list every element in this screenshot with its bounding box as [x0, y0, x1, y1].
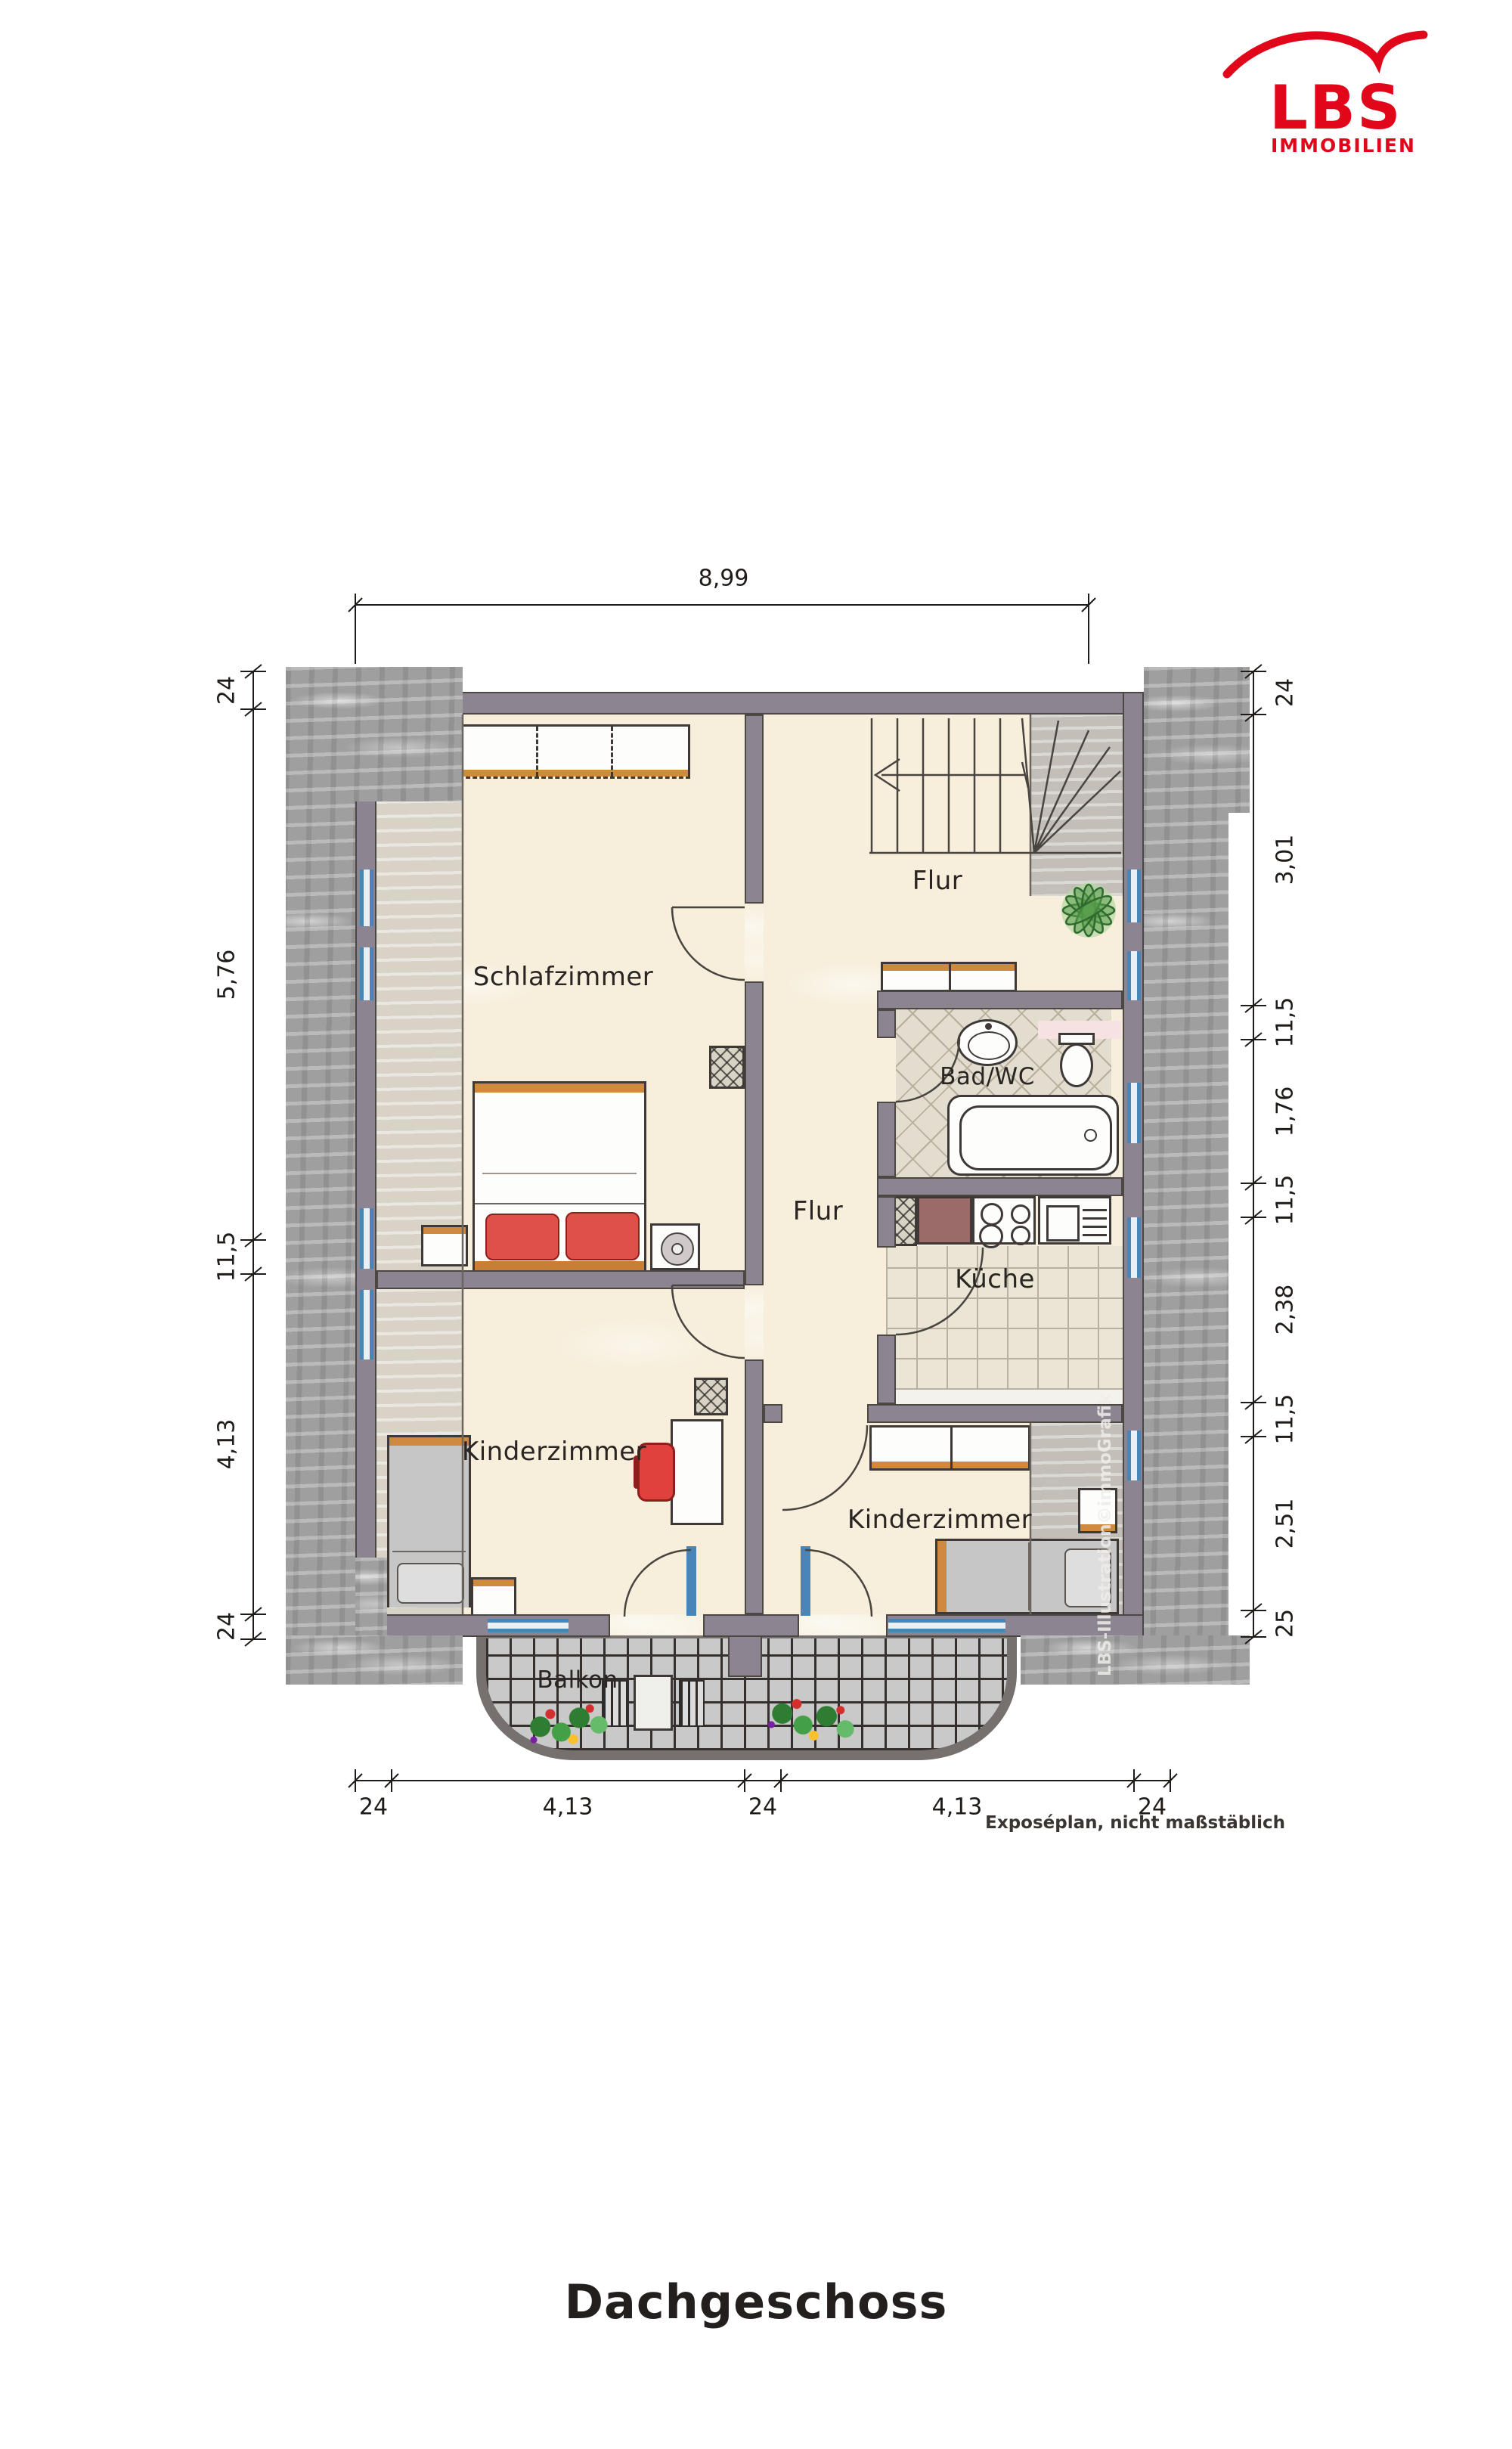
window-schlafzimmer-1 [360, 870, 373, 926]
wardrobe-divider [611, 727, 613, 777]
nightstand-left [421, 1225, 468, 1266]
wall-party-1 [745, 715, 764, 904]
footnote: Exposéplan, nicht maßstäblich [892, 1813, 1285, 1833]
nightstand-right [650, 1223, 700, 1270]
wall-top [450, 692, 1144, 715]
roof-strip-left [286, 667, 355, 1685]
bed-pillow [485, 1214, 559, 1260]
page-title: Dachgeschoss [0, 2274, 1512, 2330]
dim-right-115b: 11,5 [1272, 1175, 1299, 1226]
logo-tagline: IMMOBILIEN [1221, 135, 1440, 157]
balcony-door-opening-left [610, 1614, 703, 1637]
door-opening-kinderzimmer-links [745, 1285, 764, 1359]
wall-bad-kueche [877, 1177, 1123, 1196]
wall-bottom-1 [355, 1614, 610, 1637]
wall-left [355, 692, 376, 1635]
wall-bottom-2 [703, 1614, 799, 1637]
room-label-kinderzimmer-rechts: Kinderzimmer [847, 1505, 1032, 1535]
wall-party-2 [745, 981, 764, 1285]
dim-left-413: 4,13 [214, 1419, 240, 1470]
wall-kueche-left-2 [877, 1335, 896, 1404]
wardrobe-divider [536, 727, 538, 777]
balcony-divider-wall [728, 1635, 762, 1677]
kueche-floor-strip [886, 1390, 1123, 1404]
watermark: LBS-Illustration©immoGrafik [1095, 1393, 1115, 1676]
stove-icon [972, 1196, 1036, 1245]
dim-bottom-24b: 24 [748, 1794, 777, 1821]
dim-right-24: 24 [1272, 678, 1299, 707]
kueche-counter [917, 1196, 972, 1245]
room-label-kinderzimmer-links: Kinderzimmer [462, 1437, 646, 1467]
dim-right-25: 25 [1272, 1609, 1299, 1638]
lamp-icon [661, 1232, 694, 1266]
dim-left-576: 5,76 [214, 950, 240, 1000]
wall-kz-rechts-top-1 [764, 1404, 782, 1423]
dim-right-251: 2,51 [1272, 1499, 1299, 1549]
roof-block-bottom-right [1021, 1635, 1250, 1685]
dim-left-24a: 24 [214, 676, 240, 705]
wardrobe-right [869, 1425, 1030, 1471]
desk-left [671, 1419, 723, 1525]
bathtub-icon [947, 1095, 1119, 1176]
wall-party-3 [745, 1359, 764, 1614]
dim-top-899: 8,99 [699, 566, 749, 592]
door-opening-schlafzimmer [745, 904, 764, 981]
wall-kueche-left-1 [877, 1196, 896, 1248]
chimney-shaft-lower [694, 1378, 728, 1415]
window-kueche [1127, 1217, 1141, 1278]
bed-fold-line [482, 1173, 637, 1174]
balcony-chair-right [679, 1680, 705, 1727]
bed-pillow [565, 1212, 640, 1260]
dim-left-115: 11,5 [214, 1232, 240, 1282]
roof-block-top-left [286, 667, 463, 801]
double-bed [472, 1081, 646, 1276]
floorplan-page: { "logo": { "name": "LBS", "tagline": "I… [0, 0, 1512, 2449]
roof-block-top-right [1144, 667, 1250, 813]
window-schlafzimmer-3 [360, 1208, 373, 1269]
bed-pillow [397, 1563, 464, 1604]
schlafzimmer-wardrobe [459, 724, 690, 779]
wall-schlaf-kinder [376, 1270, 745, 1289]
room-label-balkon: Balkon [537, 1666, 618, 1694]
sink-icon [957, 1019, 1018, 1066]
single-bed-right [935, 1539, 1119, 1614]
bed-footboard [475, 1083, 644, 1093]
window-flur-1 [1127, 870, 1141, 922]
wall-bad-left-2 [877, 1102, 896, 1177]
dim-right-176: 1,76 [1272, 1087, 1299, 1137]
logo-text: LBS [1221, 82, 1440, 135]
lbs-swoosh-icon [1221, 17, 1440, 79]
dim-bottom-413a: 4,13 [543, 1794, 593, 1821]
window-schlafzimmer-2 [360, 947, 373, 1000]
hall-wardrobe [881, 962, 1017, 992]
window-kinderzimmer-rechts [1127, 1431, 1141, 1480]
wall-right [1123, 692, 1144, 1635]
balcony-door-leaf-right [801, 1546, 810, 1616]
room-label-flur-mitte: Flur [793, 1196, 844, 1226]
dim-right-115a: 11,5 [1272, 997, 1299, 1048]
room-label-kueche: Küche [955, 1264, 1035, 1294]
hall-wardrobe-divider [949, 964, 951, 990]
dim-bottom-24a: 24 [359, 1794, 388, 1821]
wc-icon [1060, 1043, 1093, 1087]
roof-block-bottom-left [286, 1635, 463, 1685]
window-kinderzimmer-links [360, 1290, 373, 1359]
window-flur-2 [1127, 951, 1141, 1000]
window-balkon-right [888, 1619, 1005, 1632]
chimney-shaft-center [709, 1046, 745, 1089]
dim-left-24b: 24 [214, 1612, 240, 1641]
room-label-flur-oben: Flur [912, 866, 963, 896]
dim-right-238: 2,38 [1272, 1285, 1299, 1335]
wall-bad-left-1 [877, 1009, 896, 1038]
kitchen-sink-icon [1038, 1196, 1111, 1245]
dim-right-301: 3,01 [1272, 835, 1299, 885]
window-bad [1127, 1083, 1141, 1143]
wardrobe-divider [950, 1428, 953, 1468]
slope-strip-stairs [1030, 715, 1123, 896]
small-cabinet [471, 1577, 516, 1617]
balcony-door-leaf-left [686, 1546, 696, 1616]
balcony-door-opening-right [799, 1614, 886, 1637]
wall-bad-top [877, 990, 1123, 1009]
wall-kz-rechts-top-2 [867, 1404, 1123, 1423]
roof-block-left-low [355, 1558, 387, 1635]
lbs-logo: LBS IMMOBILIEN [1221, 17, 1440, 149]
dim-right-115c: 11,5 [1272, 1394, 1299, 1445]
room-label-bad-wc: Bad/WC [940, 1063, 1035, 1090]
bed-sheet-line [475, 1203, 644, 1204]
single-bed-left [387, 1435, 471, 1607]
roof-strip-right [1144, 667, 1228, 1685]
room-label-schlafzimmer: Schlafzimmer [473, 962, 654, 992]
balcony-table [634, 1675, 673, 1731]
window-balkon-left [488, 1619, 569, 1632]
